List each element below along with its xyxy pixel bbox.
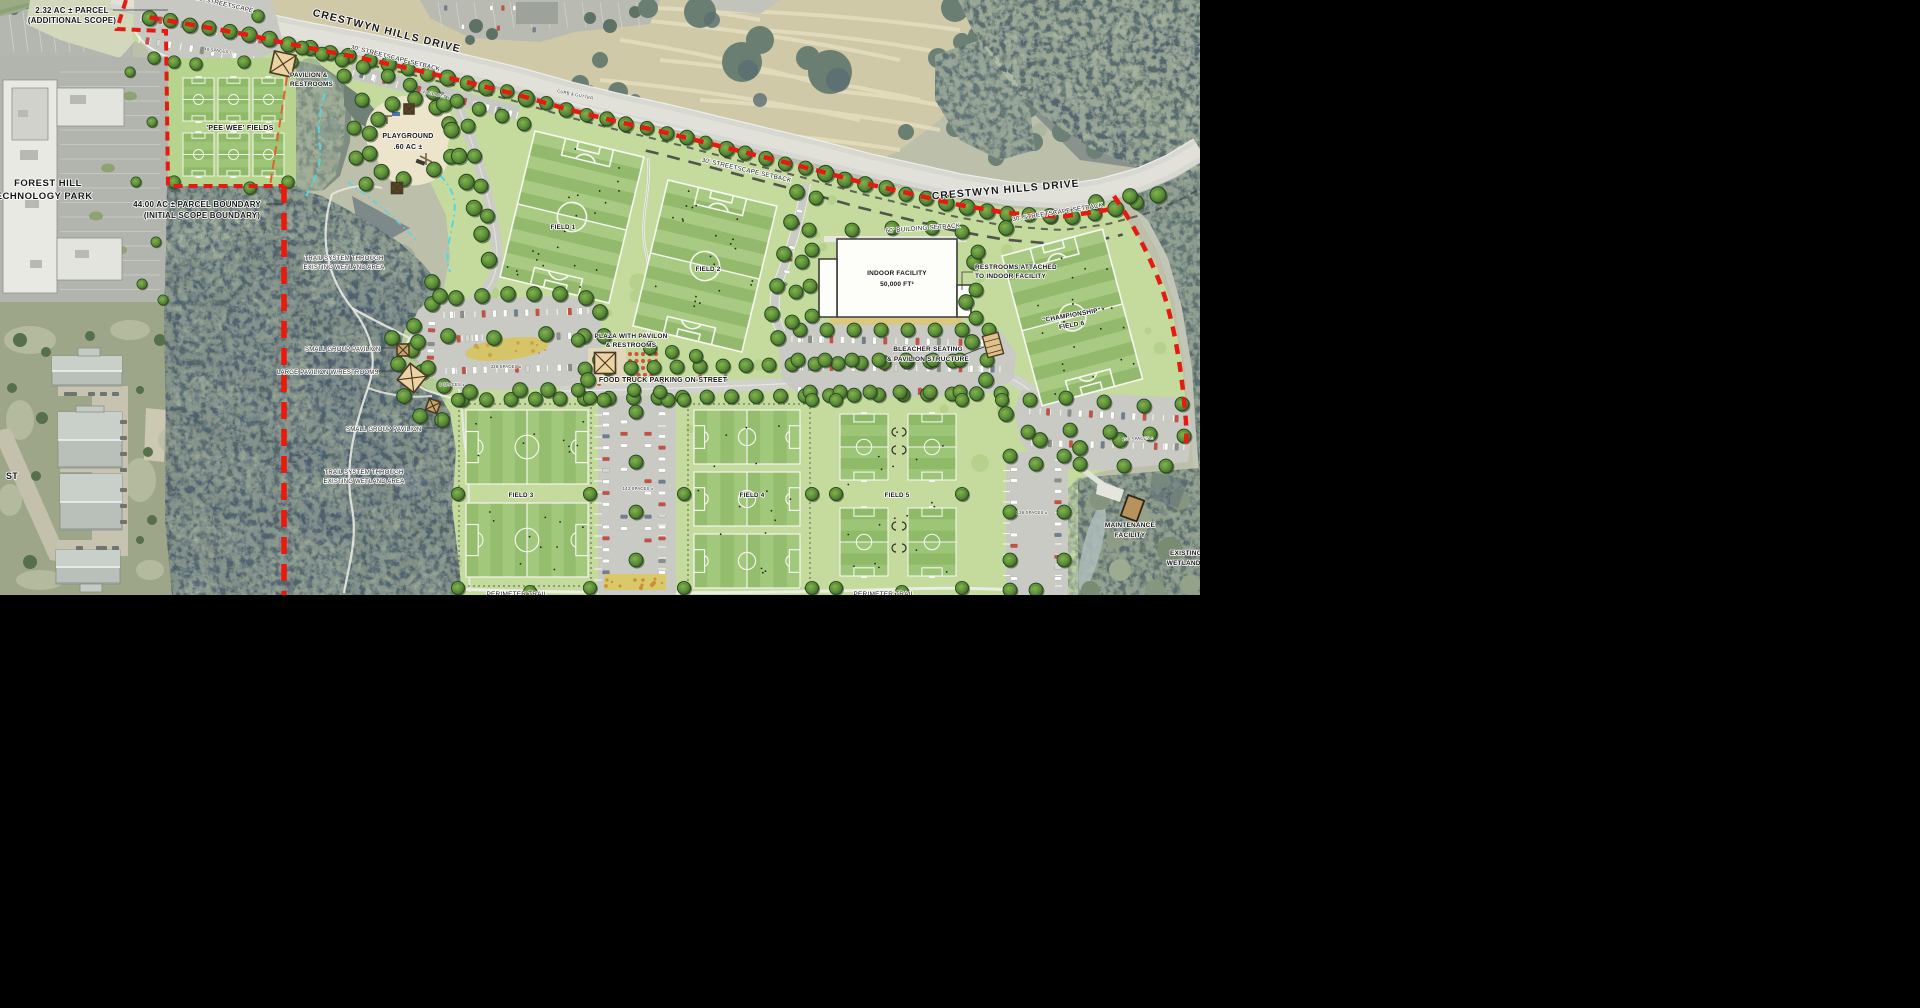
svg-text:6 SPACES ±: 6 SPACES ± [439,382,465,387]
svg-text:SMALL GROUP PAVILION: SMALL GROUP PAVILION [346,427,421,433]
svg-text:SMALL GROUP PAVILION: SMALL GROUP PAVILION [305,347,380,353]
svg-text:FIELD 5: FIELD 5 [885,492,910,499]
svg-text:PERIMETER TRAIL: PERIMETER TRAIL [486,591,547,595]
svg-text:50,000 FT²: 50,000 FT² [880,281,914,288]
svg-text:143 SPACES ±: 143 SPACES ± [623,486,654,491]
svg-text:WETLANDS: WETLANDS [1167,560,1200,567]
svg-text:PAVILION &: PAVILION & [290,72,328,79]
svg-text:TO INDOOR FACILITY: TO INDOOR FACILITY [975,273,1046,280]
svg-text:TECHNOLOGY PARK: TECHNOLOGY PARK [0,191,93,202]
svg-text:FOREST HILL: FOREST HILL [14,178,82,189]
svg-text:PERIMETER TRAIL: PERIMETER TRAIL [853,591,914,595]
svg-text:LARGE PAVILION W/RESTROOMS: LARGE PAVILION W/RESTROOMS [277,370,379,376]
svg-text:TRAIL SYSTEM THROUGH: TRAIL SYSTEM THROUGH [324,470,403,476]
svg-text:EXISTING WETLAND AREA: EXISTING WETLAND AREA [324,479,405,485]
svg-text:FIELD 1: FIELD 1 [551,224,576,231]
svg-text:136 SPACES ±: 136 SPACES ± [1017,510,1048,515]
svg-text:336 SPACES ±: 336 SPACES ± [491,364,522,369]
svg-text:RESTROOMS ATTACHED: RESTROOMS ATTACHED [975,264,1057,271]
svg-text:FIELD 2: FIELD 2 [696,266,721,273]
svg-text:TRAIL SYSTEM THROUGH: TRAIL SYSTEM THROUGH [304,256,383,262]
svg-text:PLAYGROUND: PLAYGROUND [382,133,433,140]
svg-text:EXISTING: EXISTING [1170,550,1200,557]
svg-text:INDOOR FACILITY: INDOOR FACILITY [867,270,927,277]
svg-text:& PAVILION STRUCTURE: & PAVILION STRUCTURE [887,356,970,363]
svg-text:BLEACHER SEATING: BLEACHER SEATING [893,346,963,353]
svg-text:(INITIAL SCOPE BOUNDARY): (INITIAL SCOPE BOUNDARY) [144,211,260,220]
svg-text:EXISTING WETLAND AREA: EXISTING WETLAND AREA [304,265,385,271]
svg-text:PLAZA WITH PAVILON: PLAZA WITH PAVILON [594,333,667,340]
svg-text:FOOD TRUCK PARKING ON-STREET: FOOD TRUCK PARKING ON-STREET [599,377,728,384]
svg-text:44.00 AC ± PARCEL BOUNDARY: 44.00 AC ± PARCEL BOUNDARY [133,200,261,209]
svg-text:FIELD 3: FIELD 3 [509,492,534,499]
svg-text:(ADDITIONAL SCOPE): (ADDITIONAL SCOPE) [28,16,116,25]
svg-text:ST: ST [6,471,18,481]
svg-text:MAINTENANCE: MAINTENANCE [1105,522,1156,529]
svg-text:FACILITY: FACILITY [1115,532,1146,539]
svg-text:'PEE-WEE' FIELDS: 'PEE-WEE' FIELDS [206,123,273,132]
svg-text:& RESTROOMS: & RESTROOMS [606,342,657,349]
svg-text:FIELD 4: FIELD 4 [740,492,765,499]
svg-text:2.32 AC ± PARCEL: 2.32 AC ± PARCEL [35,6,108,15]
svg-text:RESTROOMS: RESTROOMS [290,81,334,88]
svg-text:.60 AC ±: .60 AC ± [394,144,423,151]
